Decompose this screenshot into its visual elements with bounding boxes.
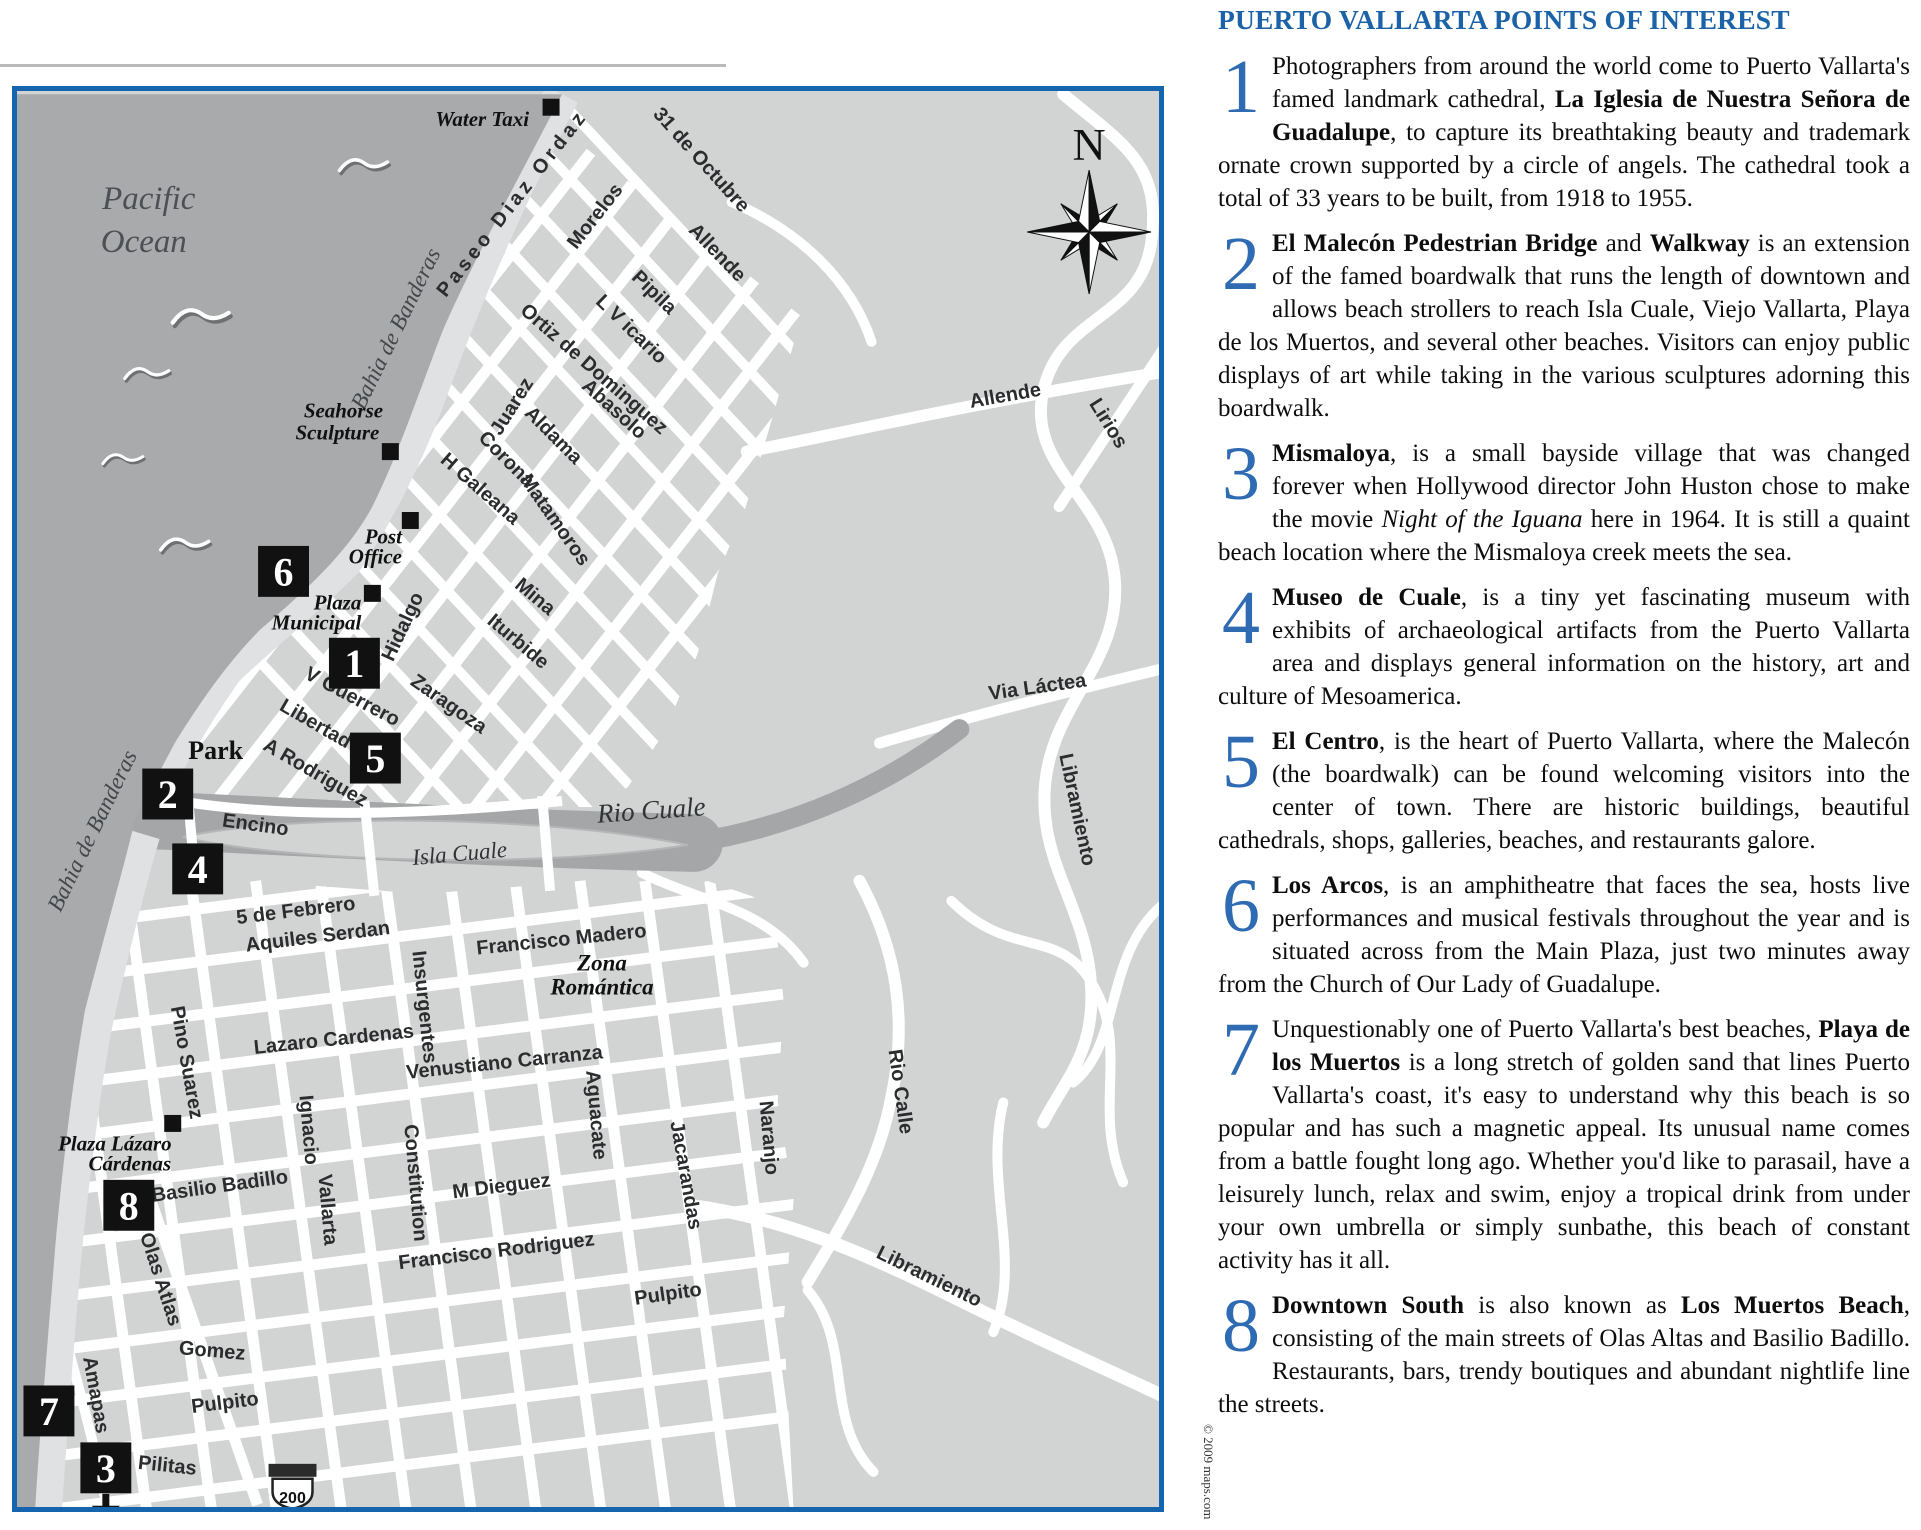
poi-description: Photographers from around the world come… bbox=[1218, 50, 1910, 215]
map-marker-7: 7 bbox=[23, 1385, 74, 1436]
poi-description: El Centro, is the heart of Puerto Vallar… bbox=[1218, 725, 1910, 857]
poi-description: Mismaloya, is a small bayside village th… bbox=[1218, 437, 1910, 569]
compass-north-label: N bbox=[1073, 119, 1106, 170]
svg-text:2: 2 bbox=[158, 772, 178, 817]
poi-square-icon bbox=[364, 585, 381, 602]
poi-list: 1Photographers from around the world com… bbox=[1218, 50, 1910, 1421]
poi-description: El Malecón Pedestrian Bridge and Walkway… bbox=[1218, 227, 1910, 425]
points-of-interest-panel: PUERTO VALLARTA POINTS OF INTEREST 1Phot… bbox=[1218, 2, 1910, 1433]
poi-item: 1Photographers from around the world com… bbox=[1218, 50, 1910, 215]
map-marker-2: 2 bbox=[142, 769, 193, 820]
map-label: Seahorse bbox=[304, 399, 383, 423]
poi-number: 8 bbox=[1218, 1295, 1264, 1357]
poi-description: Unquestionably one of Puerto Vallarta's … bbox=[1218, 1013, 1910, 1277]
map-marker-3: 3 bbox=[80, 1442, 131, 1493]
poi-item: 5El Centro, is the heart of Puerto Valla… bbox=[1218, 725, 1910, 857]
poi-item: 6Los Arcos, is an amphitheatre that face… bbox=[1218, 869, 1910, 1001]
map-marker-1: 1 bbox=[329, 638, 380, 689]
map-label: Water Taxi bbox=[435, 107, 529, 131]
poi-number: 3 bbox=[1218, 443, 1264, 505]
poi-description: Downtown South is also known as Los Muer… bbox=[1218, 1289, 1910, 1421]
poi-square-icon bbox=[543, 99, 560, 116]
svg-text:8: 8 bbox=[119, 1183, 139, 1228]
svg-text:5: 5 bbox=[365, 736, 385, 781]
map-marker-6: 6 bbox=[258, 546, 309, 597]
map-marker-4: 4 bbox=[172, 843, 223, 894]
svg-text:4: 4 bbox=[188, 847, 208, 892]
map-label: Cárdenas bbox=[88, 1151, 171, 1175]
poi-square-icon bbox=[402, 512, 419, 529]
poi-square-icon bbox=[382, 443, 399, 460]
svg-text:6: 6 bbox=[274, 549, 294, 594]
poi-number: 6 bbox=[1218, 875, 1264, 937]
svg-text:200: 200 bbox=[279, 1490, 306, 1507]
map-label: Municipal bbox=[271, 610, 362, 634]
page-title: PUERTO VALLARTA POINTS OF INTEREST bbox=[1218, 4, 1910, 36]
map-canvas: PacificOceanBahia de BanderasBahia de Ba… bbox=[17, 91, 1159, 1507]
svg-text:1: 1 bbox=[344, 641, 364, 686]
poi-number: 2 bbox=[1218, 233, 1264, 295]
svg-text:7: 7 bbox=[39, 1389, 59, 1434]
svg-text:3: 3 bbox=[96, 1446, 116, 1491]
poi-item: 2El Malecón Pedestrian Bridge and Walkwa… bbox=[1218, 227, 1910, 425]
poi-item: 4Museo de Cuale, is a tiny yet fascinati… bbox=[1218, 581, 1910, 713]
map-marker-5: 5 bbox=[350, 733, 401, 784]
map-label: Sculpture bbox=[296, 421, 380, 445]
poi-number: 4 bbox=[1218, 587, 1264, 649]
poi-square-icon bbox=[164, 1115, 181, 1132]
highway-200-shield: 200 bbox=[269, 1464, 317, 1507]
page: PacificOceanBahia de BanderasBahia de Ba… bbox=[0, 0, 1921, 1530]
poi-description: Los Arcos, is an amphitheatre that faces… bbox=[1218, 869, 1910, 1001]
map-label: Zona bbox=[576, 951, 627, 976]
poi-number: 7 bbox=[1218, 1019, 1264, 1081]
map-label: Romántica bbox=[549, 975, 653, 1000]
poi-description: Museo de Cuale, is a tiny yet fascinatin… bbox=[1218, 581, 1910, 713]
poi-item: 3Mismaloya, is a small bayside village t… bbox=[1218, 437, 1910, 569]
map-label: Office bbox=[349, 544, 402, 568]
map-label: Park bbox=[188, 736, 243, 765]
map-marker-8: 8 bbox=[103, 1180, 154, 1231]
map-label: Ocean bbox=[101, 224, 187, 260]
top-rule bbox=[0, 64, 726, 67]
poi-number: 1 bbox=[1218, 56, 1264, 118]
city-map: PacificOceanBahia de BanderasBahia de Ba… bbox=[12, 86, 1164, 1512]
poi-number: 5 bbox=[1218, 731, 1264, 793]
poi-item: 7Unquestionably one of Puerto Vallarta's… bbox=[1218, 1013, 1910, 1277]
map-label: Pacific bbox=[101, 181, 196, 217]
copyright-note: © 2009 maps.com bbox=[1200, 1424, 1216, 1519]
poi-item: 8Downtown South is also known as Los Mue… bbox=[1218, 1289, 1910, 1421]
